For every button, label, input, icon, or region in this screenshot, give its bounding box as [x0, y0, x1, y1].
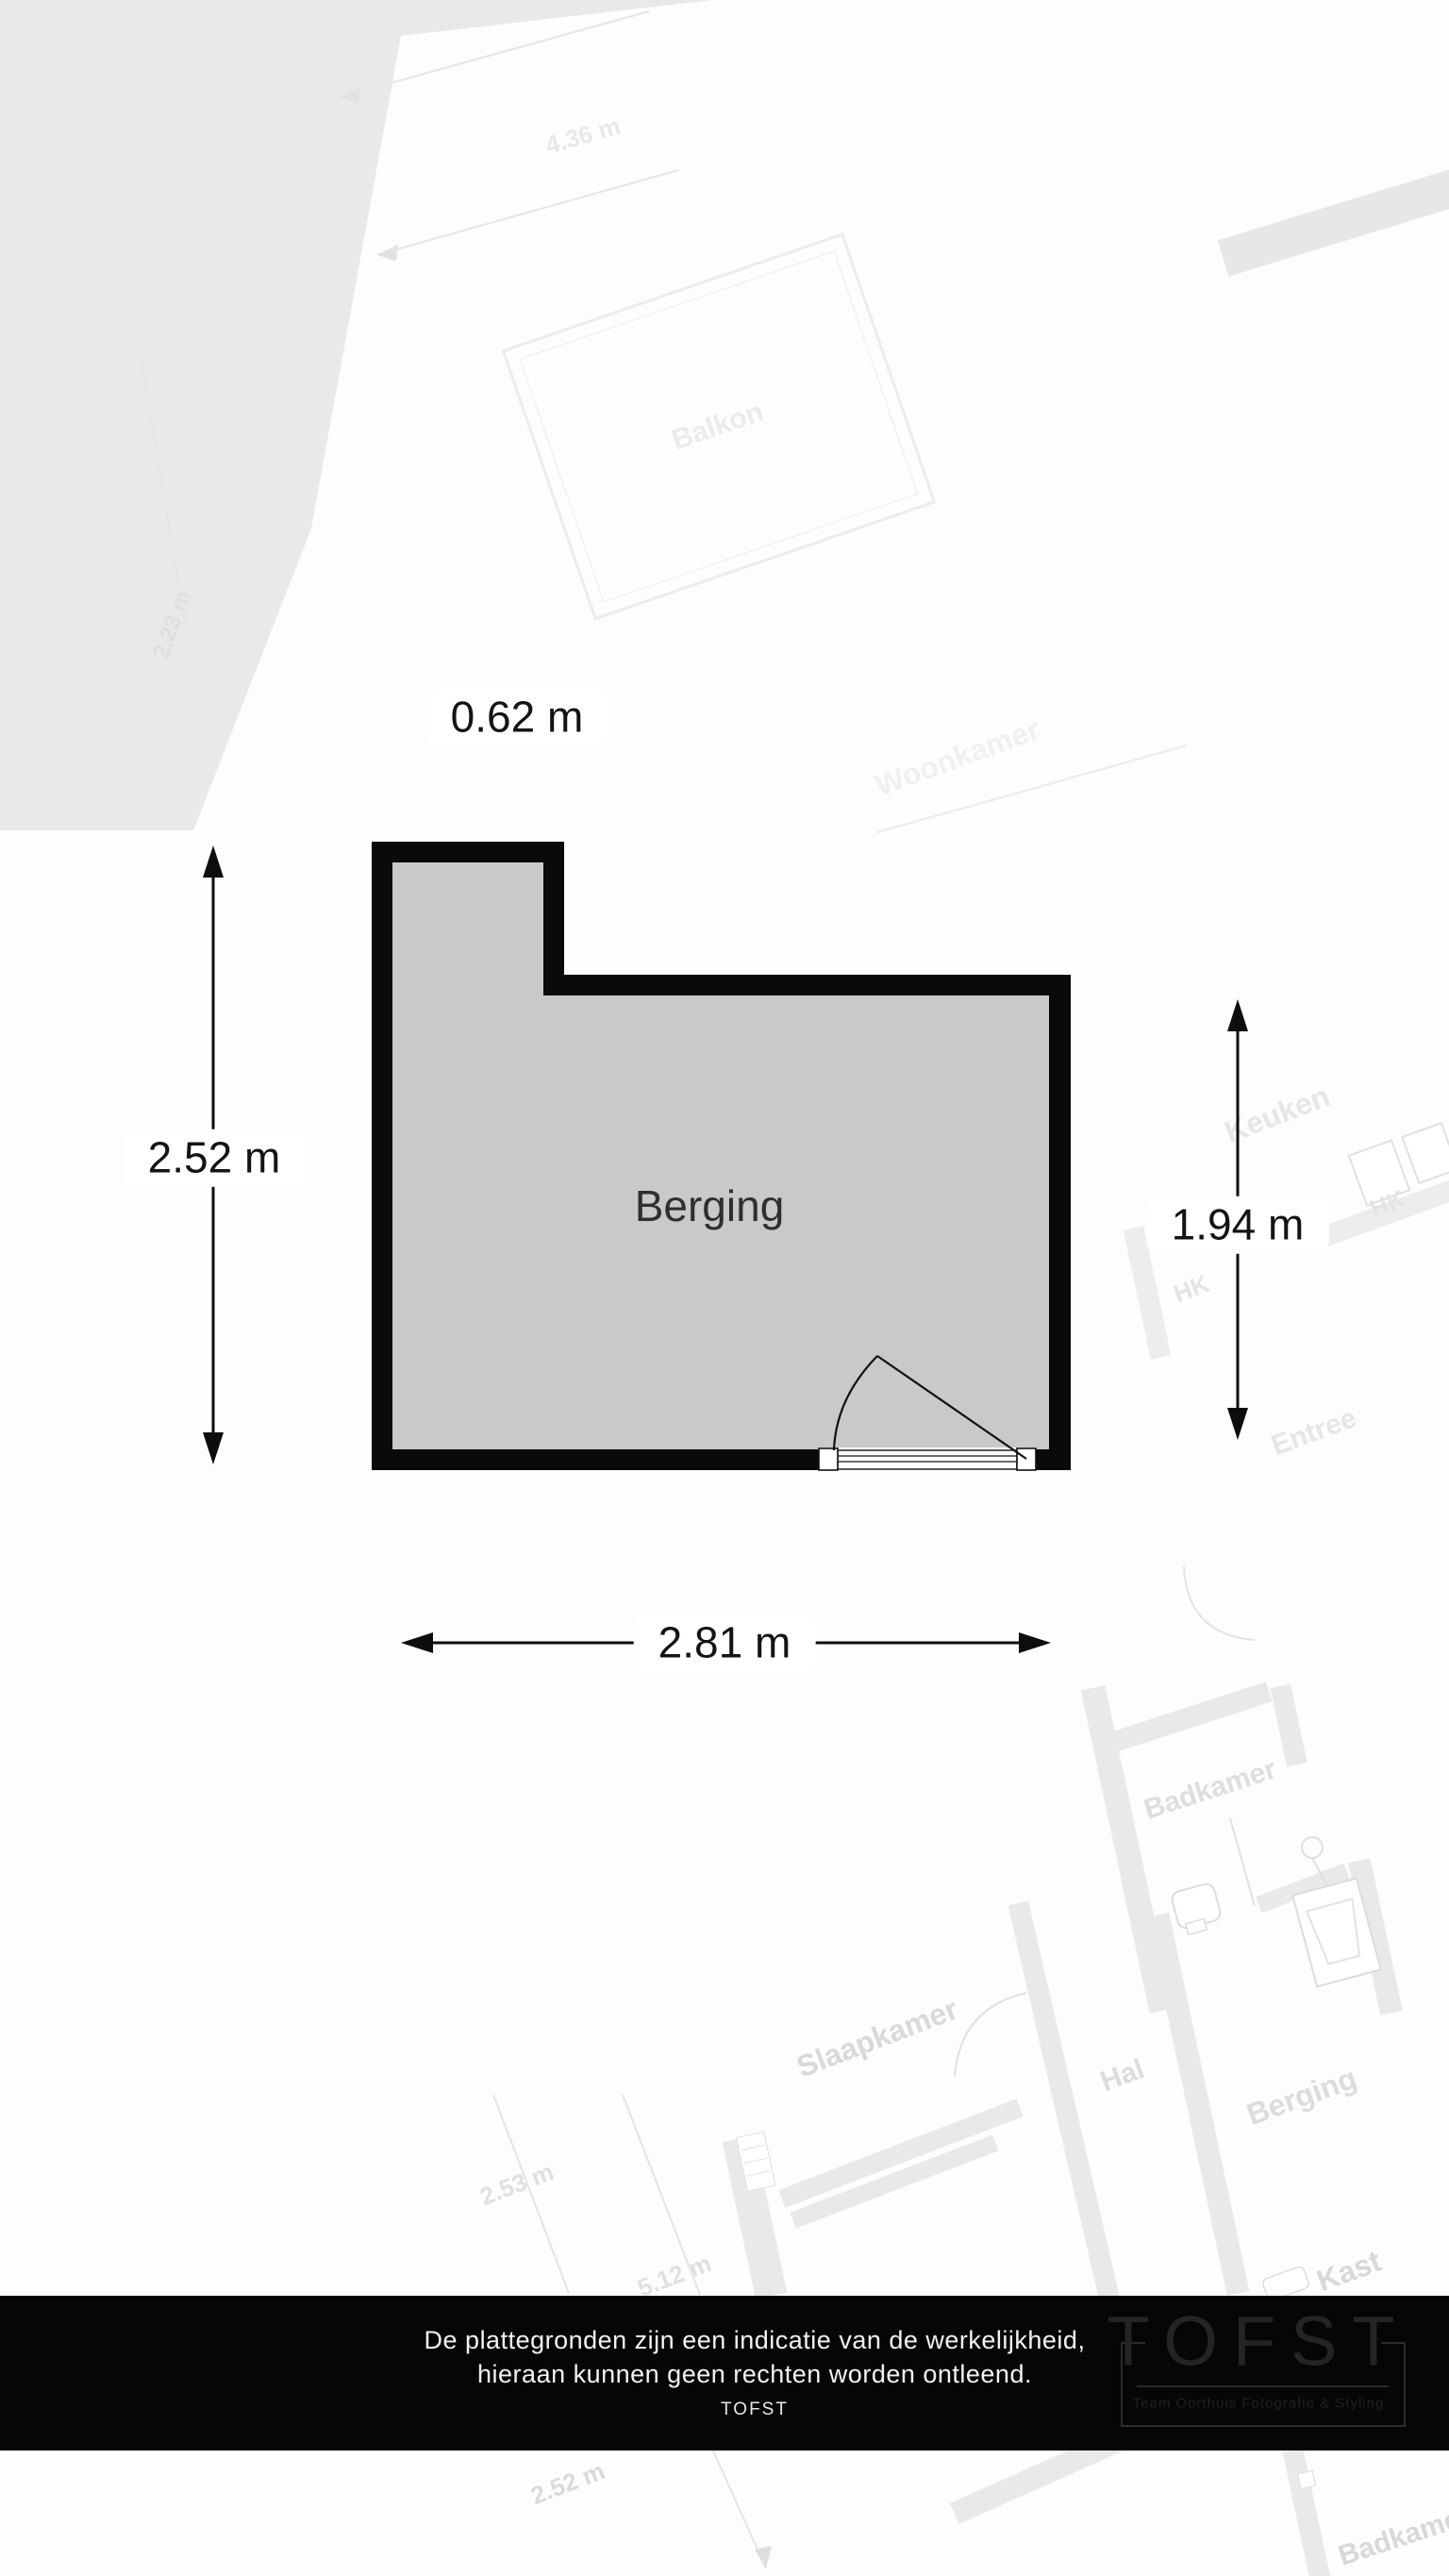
dimension-label-right: 1.94 m: [1147, 1196, 1329, 1254]
dimension-label-top: 0.62 m: [426, 689, 608, 746]
berging-room-plan: [0, 0, 1449, 2576]
dimension-label-left: 2.52 m: [124, 1129, 306, 1187]
door-jamb-left: [819, 1448, 838, 1470]
room-floor: [392, 862, 1049, 1449]
tofst-logo-wordmark: TOFST: [1107, 2301, 1409, 2382]
dimension-label-bottom: 2.81 m: [634, 1614, 816, 1672]
room-name-label: Berging: [635, 1180, 785, 1231]
floorplan-page: Balkon 4.36 m 2.23 m Woonkamer Keuken HK…: [0, 0, 1449, 2576]
tofst-logo-divider: [1137, 2385, 1389, 2387]
door-jamb-right: [1017, 1448, 1036, 1470]
tofst-logo-tagline: Team Oorthuis Fotografie & Styling: [1133, 2396, 1385, 2412]
